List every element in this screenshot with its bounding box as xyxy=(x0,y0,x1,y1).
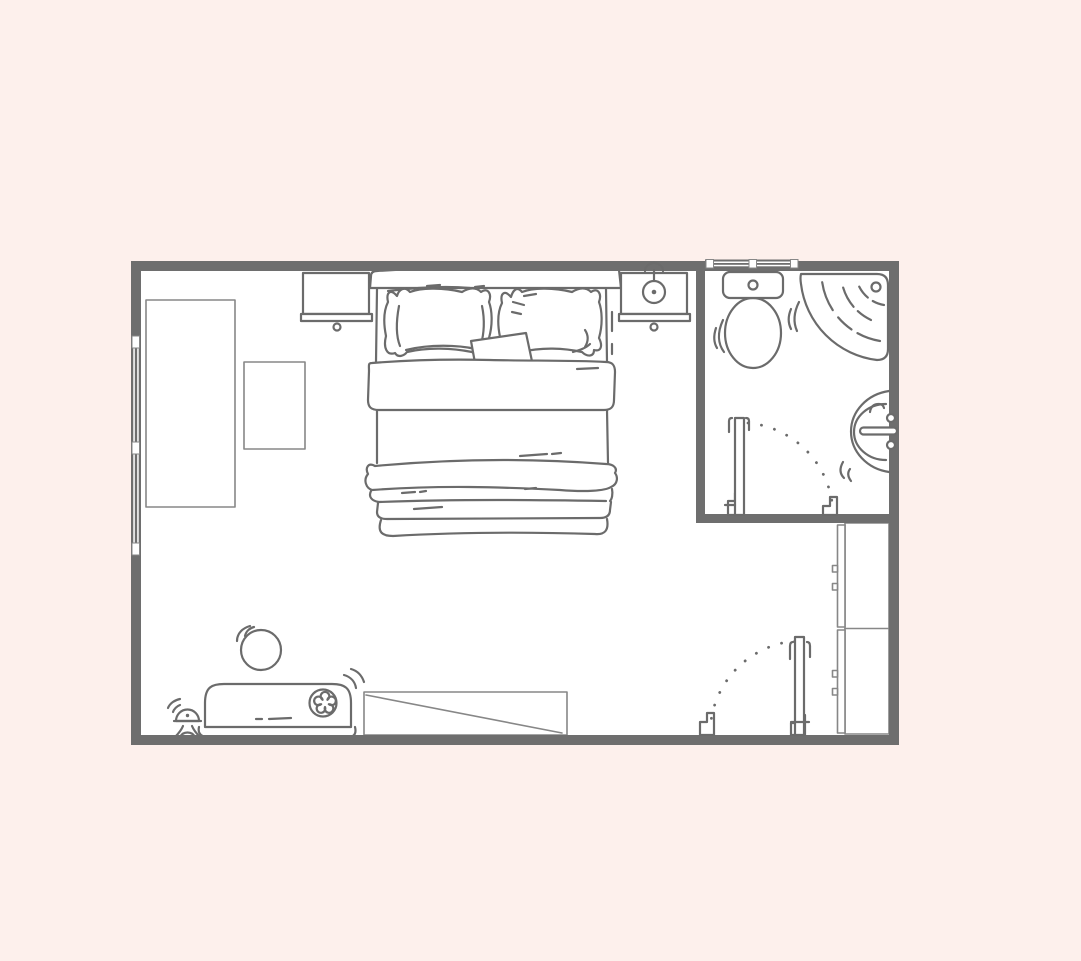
side-table xyxy=(244,362,305,449)
wall-bottom xyxy=(131,735,899,745)
flush-button-icon xyxy=(749,281,758,290)
floor-plan-page xyxy=(0,0,1081,961)
console xyxy=(364,692,567,735)
table-lamp xyxy=(643,263,665,303)
closet-door-upper xyxy=(838,525,846,627)
door-leaf xyxy=(735,418,744,515)
door-leaf xyxy=(795,637,804,735)
wall-right xyxy=(889,261,899,745)
flower-emblem-icon xyxy=(310,690,337,717)
nightstand-left xyxy=(301,273,372,331)
closet-knob-icon xyxy=(833,566,838,573)
shower-drain-icon xyxy=(872,283,881,292)
closet-door-lower xyxy=(838,630,846,733)
blanket-fold xyxy=(368,360,615,410)
closet-knob-icon xyxy=(833,671,838,678)
closet-knob-icon xyxy=(833,689,838,696)
window-bathroom xyxy=(705,260,798,269)
window-left xyxy=(132,336,141,555)
tap-knob-icon xyxy=(887,414,895,422)
tap-knob-icon xyxy=(887,441,895,449)
faucet-icon xyxy=(860,428,897,435)
drawer-knob-icon xyxy=(651,324,658,331)
closet-knob-icon xyxy=(833,584,838,591)
wardrobe xyxy=(146,300,235,507)
wall-bathroom-horizontal xyxy=(696,514,889,523)
wall-bathroom-vertical xyxy=(696,271,705,523)
drawer-knob-icon xyxy=(334,324,341,331)
floor-plan-canvas xyxy=(0,0,1081,961)
